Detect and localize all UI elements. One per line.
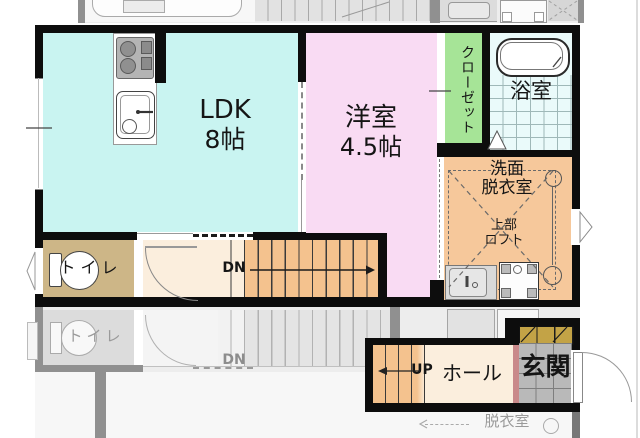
shower-corner-tl (501, 264, 511, 274)
label-bath: 浴室 (490, 80, 572, 104)
label-closet: クローゼット (454, 35, 474, 145)
washroom-partition-dashes (439, 159, 440, 278)
label-faded-toilet: トイレ (56, 328, 136, 345)
label-faded-washroom: 脱衣室 (462, 413, 552, 430)
washroom-basin-bowl (449, 268, 487, 297)
western-size: 4.5帖 (315, 134, 427, 161)
stove-grill-top (141, 41, 152, 54)
toilet-door-strip (134, 240, 143, 297)
label-hall-lower: ホール (430, 362, 514, 385)
faded-top-wall-left (78, 0, 85, 23)
shower-corner-bl (501, 288, 511, 298)
ldk-opening-line (137, 233, 193, 234)
shower-corner-tr (527, 264, 537, 274)
toilet-window-marker (27, 252, 35, 290)
faded-top-toilet-corner-left (502, 12, 512, 22)
shower-corner-br (527, 288, 537, 298)
washroom-door-gap (571, 209, 581, 245)
faded-line-under-stairs (143, 366, 390, 367)
faded-wall-stairs-right (390, 307, 400, 338)
laundry-pole-circle-bottom (543, 266, 562, 285)
divider-dashed-opening (301, 82, 303, 180)
bathtub-inner (500, 42, 563, 70)
ldk-name: LDK (160, 96, 290, 126)
ldk-size: 8帖 (160, 126, 290, 155)
label-washroom: 洗面 脱衣室 (444, 160, 570, 199)
loft-line2: ロフト (452, 234, 556, 249)
faded-basin-lower (447, 309, 495, 341)
label-ldk: LDK 8帖 (160, 96, 290, 154)
sink-drain (122, 119, 137, 134)
faded-top-wall-mid (430, 0, 440, 23)
stove-grill-bottom (141, 57, 152, 70)
toilet-window (35, 248, 43, 294)
faded-top-basin-bowl (448, 2, 490, 19)
label-entrance: 玄関 (517, 353, 574, 382)
label-toilet: トイレ (48, 259, 134, 277)
shower-unit-circle (513, 265, 522, 274)
edge-line-right (636, 0, 638, 438)
closet-door-strip (437, 33, 445, 143)
faded-top-toilet-corner-right (534, 12, 544, 22)
western-name: 洋室 (315, 104, 427, 134)
floorplan-canvas: LDK 8帖 洋室 4.5帖 クローゼット 浴室 洗面 脱衣室 上部 ロフト ト… (0, 0, 640, 438)
faded-top-xroom (548, 0, 578, 21)
faded-top-stairs (255, 0, 430, 21)
ldk-window (35, 78, 43, 190)
label-faded-stairs-dn: DN (218, 353, 250, 369)
entrance-door-arc (582, 352, 632, 402)
faded-toilet-window (27, 322, 38, 360)
faded-fixture (123, 0, 165, 13)
washroom-line1: 洗面 (444, 160, 570, 179)
stove-burner-bottom (120, 58, 136, 74)
washroom-wall-block (430, 280, 444, 307)
divider-wall-stub (298, 33, 306, 82)
faded-wall-below-entrance (572, 412, 580, 438)
kitchen-wall-stub (155, 25, 166, 83)
faded-wall-under-toilet (35, 365, 143, 372)
divider-thin-line (301, 180, 302, 232)
stove-burner-top (120, 41, 136, 57)
faded-top-wall-right (578, 0, 584, 23)
ldk-window-pane (38, 78, 39, 188)
label-stairs-dn: DN (218, 261, 250, 277)
ldk-opening-dashes (193, 234, 253, 237)
label-western: 洋室 4.5帖 (315, 104, 427, 161)
faded-counter (92, 0, 242, 17)
washroom-door-swing (580, 212, 592, 242)
washroom-line2: 脱衣室 (444, 179, 570, 198)
faded-wall-vertical (95, 368, 106, 438)
loft-line1: 上部 (452, 219, 556, 234)
label-loft: 上部 ロフト (452, 219, 556, 249)
